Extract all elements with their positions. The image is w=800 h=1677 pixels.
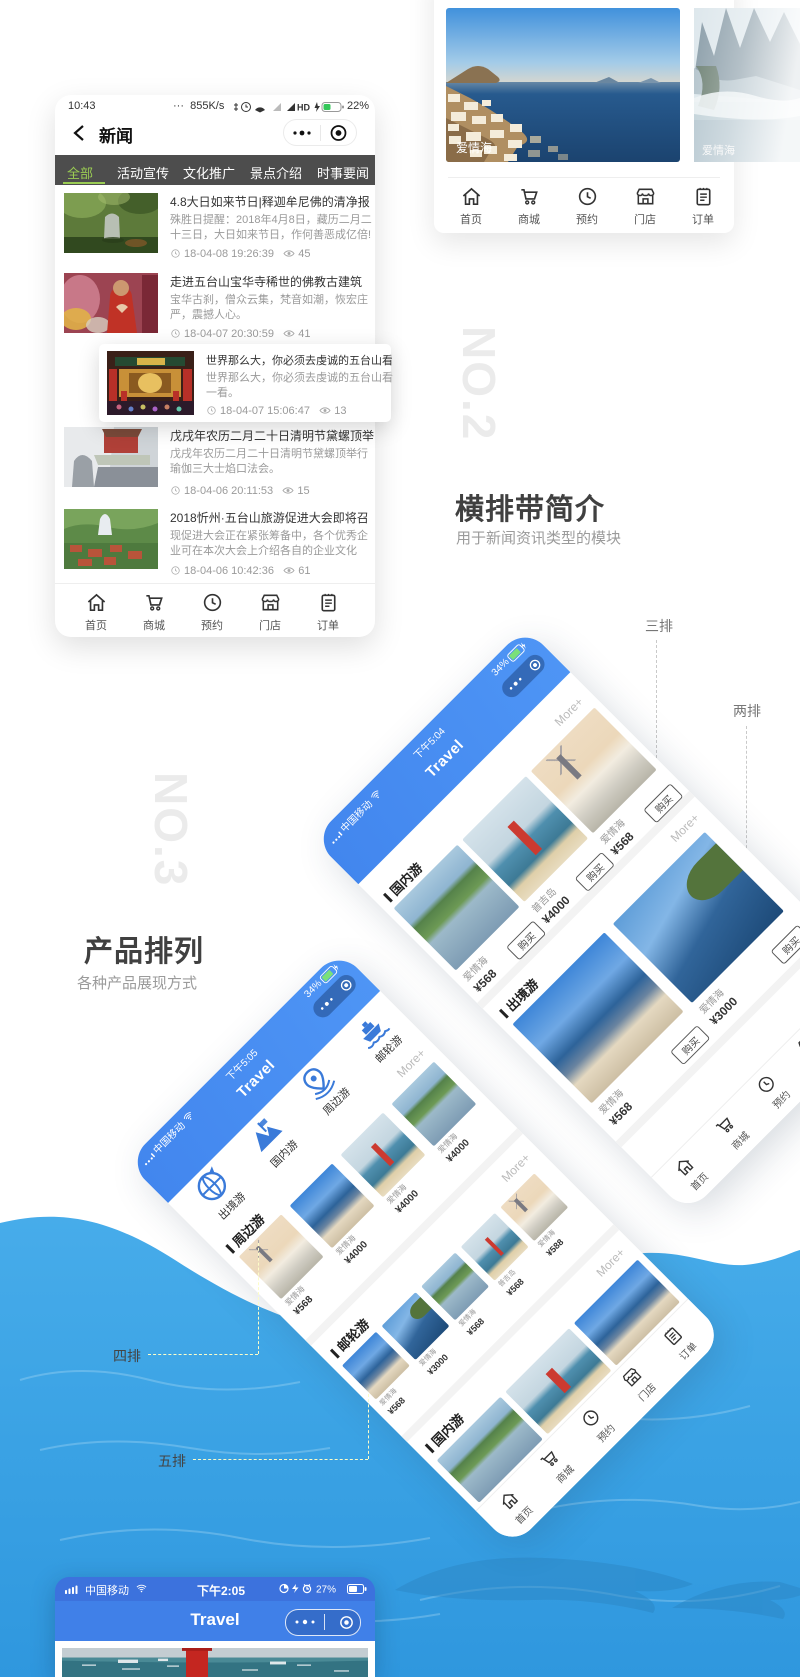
svg-text:HD: HD	[297, 103, 310, 113]
svg-text:爱情海: 爱情海	[456, 140, 492, 155]
svg-text:27%: 27%	[316, 1585, 336, 1595]
